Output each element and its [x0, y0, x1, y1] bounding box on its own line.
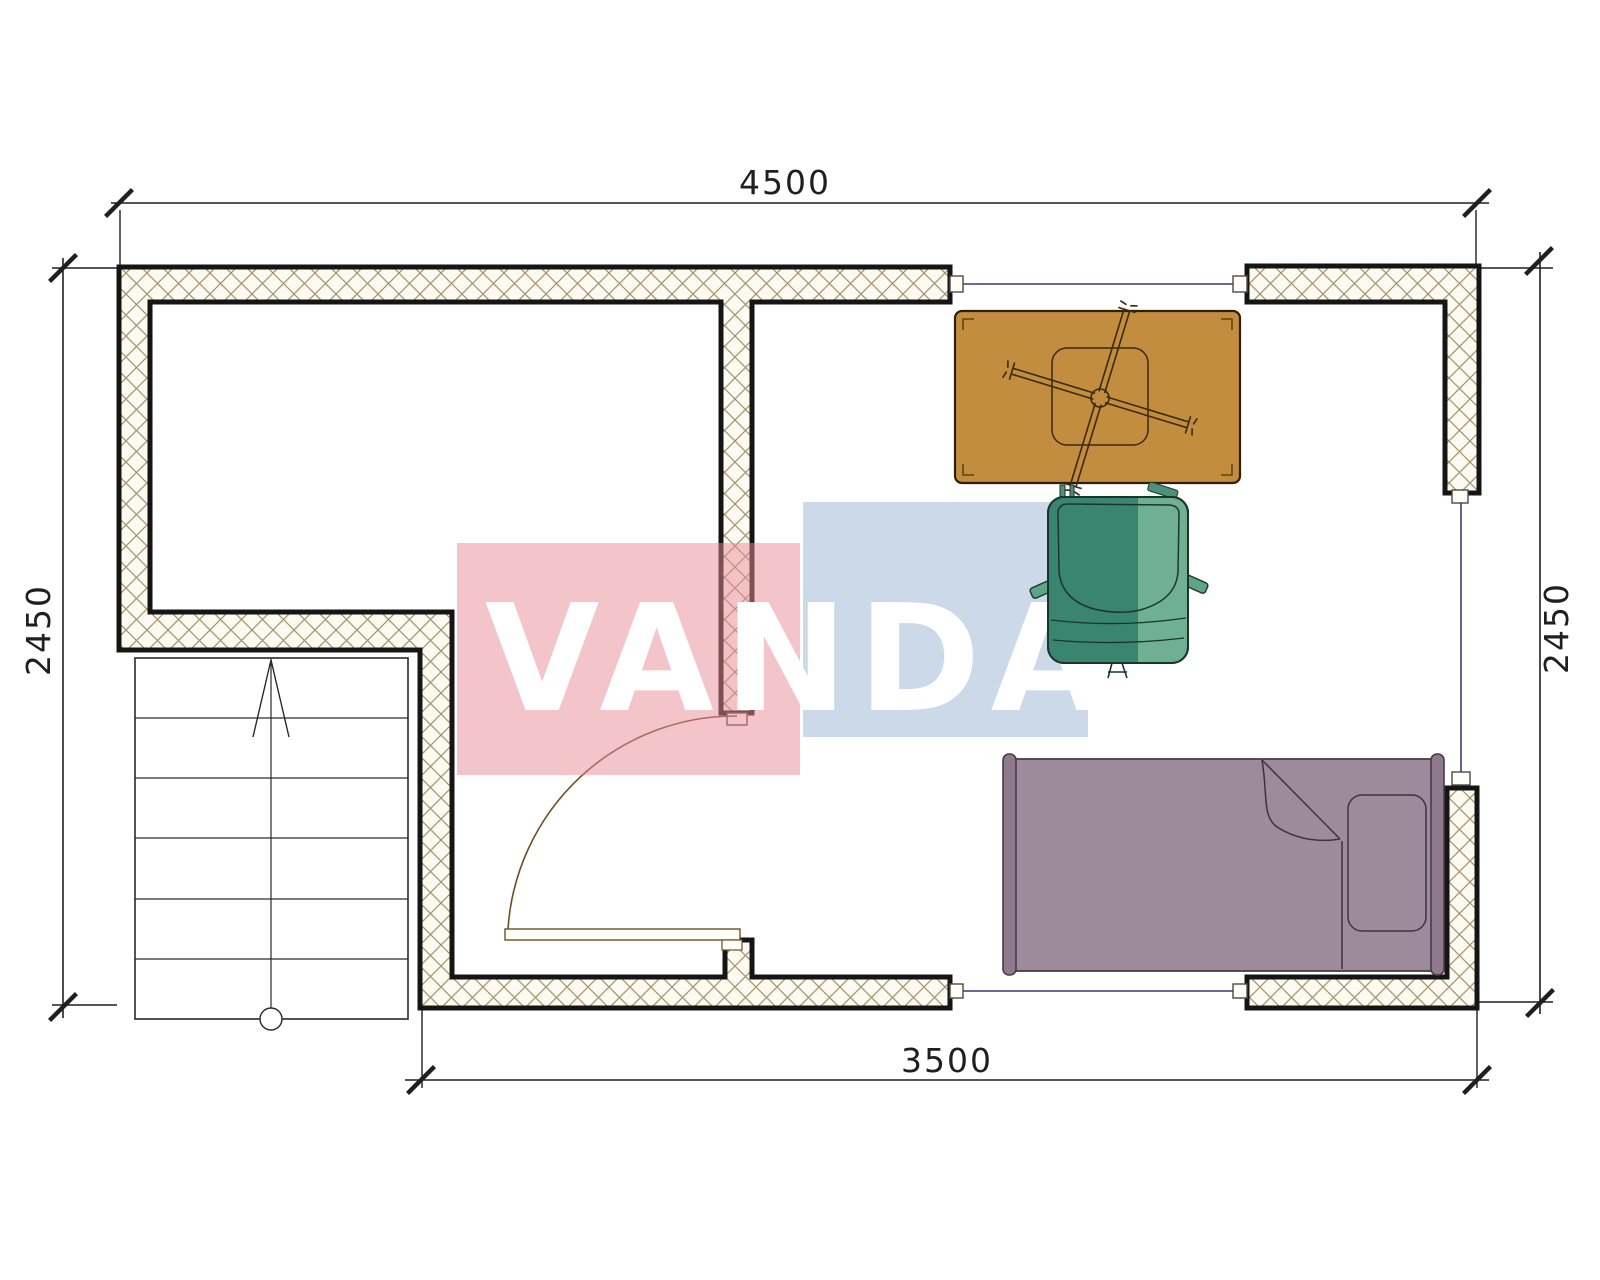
armchair	[1029, 482, 1209, 678]
jamb-cap	[1233, 984, 1247, 998]
jamb-cap	[950, 276, 963, 292]
door-leaf	[505, 929, 740, 940]
bed-foot-bar	[1003, 754, 1016, 975]
dimension-label-top: 4500	[739, 163, 831, 202]
door-leaf-end	[722, 940, 742, 950]
watermark-text: VANDA	[485, 573, 1115, 745]
dim-tick	[1526, 248, 1553, 275]
jamb-cap	[1452, 490, 1468, 503]
wall-top-right	[1247, 266, 1479, 493]
jamb-cap	[950, 984, 963, 998]
dimension-label-right: 2450	[1537, 582, 1576, 674]
dimension-label-left: 2450	[19, 584, 58, 676]
armchair-shade	[1048, 497, 1138, 663]
table-with-chair	[955, 274, 1240, 521]
stair-start-circle	[260, 1008, 282, 1030]
single-bed	[1003, 754, 1444, 975]
table-top	[955, 311, 1240, 483]
staircase	[135, 658, 408, 1030]
dimension-label-bottom: 3500	[901, 1041, 993, 1080]
watermark: VANDA	[457, 502, 1115, 775]
floor-plan-page: 4500 3500 2450 2450	[0, 0, 1600, 1280]
jamb-cap	[1452, 772, 1470, 785]
bed-head-bar	[1431, 754, 1444, 975]
bed-mattress	[1010, 759, 1439, 971]
jamb-cap	[1233, 276, 1247, 292]
dimension-left	[50, 255, 119, 1021]
floor-plan-canvas: 4500 3500 2450 2450	[0, 0, 1600, 1280]
